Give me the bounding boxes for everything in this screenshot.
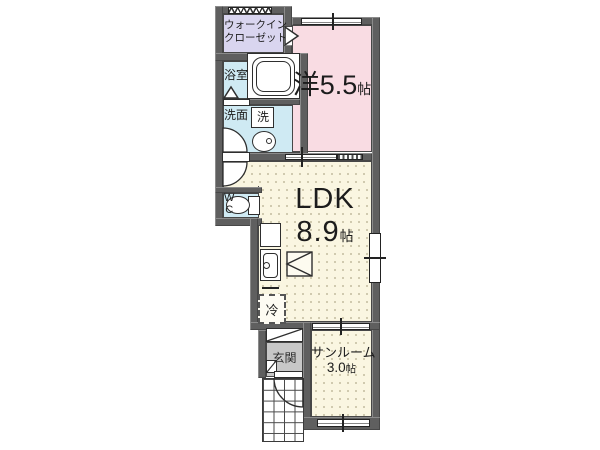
western-room-label: 洋5.5帖: [292, 70, 372, 101]
wic-label: ウォークイン クローゼット: [224, 19, 284, 45]
western-top-window-tick: [332, 13, 334, 30]
counter-end-line: [262, 287, 279, 289]
ldk-label: LDK 8.9帖: [280, 183, 370, 250]
sunroom-top-window-tick: [340, 318, 342, 335]
wc-label: W C: [224, 193, 234, 216]
sliding-door-tick: [301, 147, 303, 167]
ldk-door-swing-arc: [223, 162, 247, 186]
floor-plan: 冷 ウォークイン クローゼット 浴室 洗面 洗 W C: [0, 0, 600, 450]
sunroom-bottom-window-tick: [342, 414, 344, 432]
washer-label: 洗: [257, 111, 269, 125]
washroom-label: 洗面: [224, 109, 248, 123]
bath-label: 浴室: [224, 69, 248, 83]
entrance-label: 玄関: [266, 352, 303, 366]
front-door-swing-arc: [274, 378, 303, 407]
sunroom-label: サンルーム 3.0帖: [311, 345, 372, 377]
washroom-door-swing-arc: [223, 128, 247, 152]
floor-hatch-icon: [287, 252, 312, 276]
ldk-side-window-tick: [364, 257, 386, 259]
bath-door-triangle-icon: [224, 87, 238, 98]
entrance-cabinet-diagonal: [267, 329, 302, 341]
